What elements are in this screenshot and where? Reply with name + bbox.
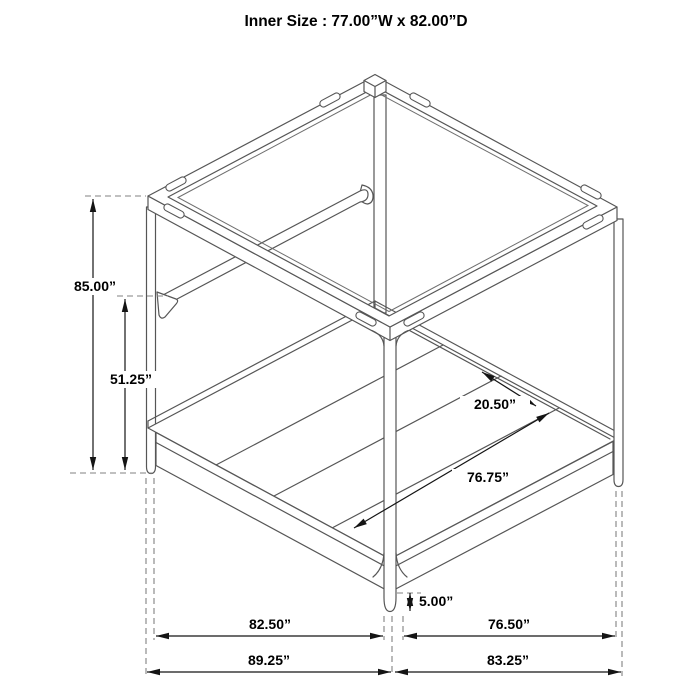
bed-dimension-diagram-page: 85.00” 51.25” 20.50” 76.75” 5.00” 82.50”: [0, 0, 700, 700]
canopy-bed-line-drawing: 85.00” 51.25” 20.50” 76.75” 5.00” 82.50”: [0, 0, 700, 700]
base-depth-inner-label: 76.50”: [488, 616, 530, 632]
headboard-rail-height-label: 51.25”: [110, 371, 152, 387]
dim-base-depth-inner: 76.50”: [404, 616, 615, 636]
right-post: [614, 219, 623, 487]
left-post: [147, 207, 156, 474]
bed-structure: [147, 75, 624, 612]
dim-base-width-inner: 82.50”: [156, 616, 383, 636]
overall-depth-label: 83.25”: [487, 652, 529, 668]
diagram-title: Inner Size : 77.00”W x 82.00”D: [244, 13, 467, 30]
dim-overall-height: 85.00”: [60, 199, 130, 470]
back-post: [374, 95, 386, 313]
slat-spacing-label: 20.50”: [474, 396, 516, 412]
overall-width-label: 89.25”: [248, 652, 290, 668]
back-post-cap: [364, 75, 386, 98]
base-width-inner-label: 82.50”: [249, 616, 291, 632]
dim-overall-width: 89.25”: [147, 652, 391, 672]
leg-clearance-label: 5.00”: [419, 593, 453, 609]
slat-deck: [148, 308, 617, 559]
dim-overall-depth: 83.25”: [395, 652, 621, 672]
slat-length-label: 76.75”: [467, 469, 509, 485]
dim-leg-clearance: 5.00”: [410, 593, 453, 611]
overall-height-label: 85.00”: [74, 278, 116, 294]
